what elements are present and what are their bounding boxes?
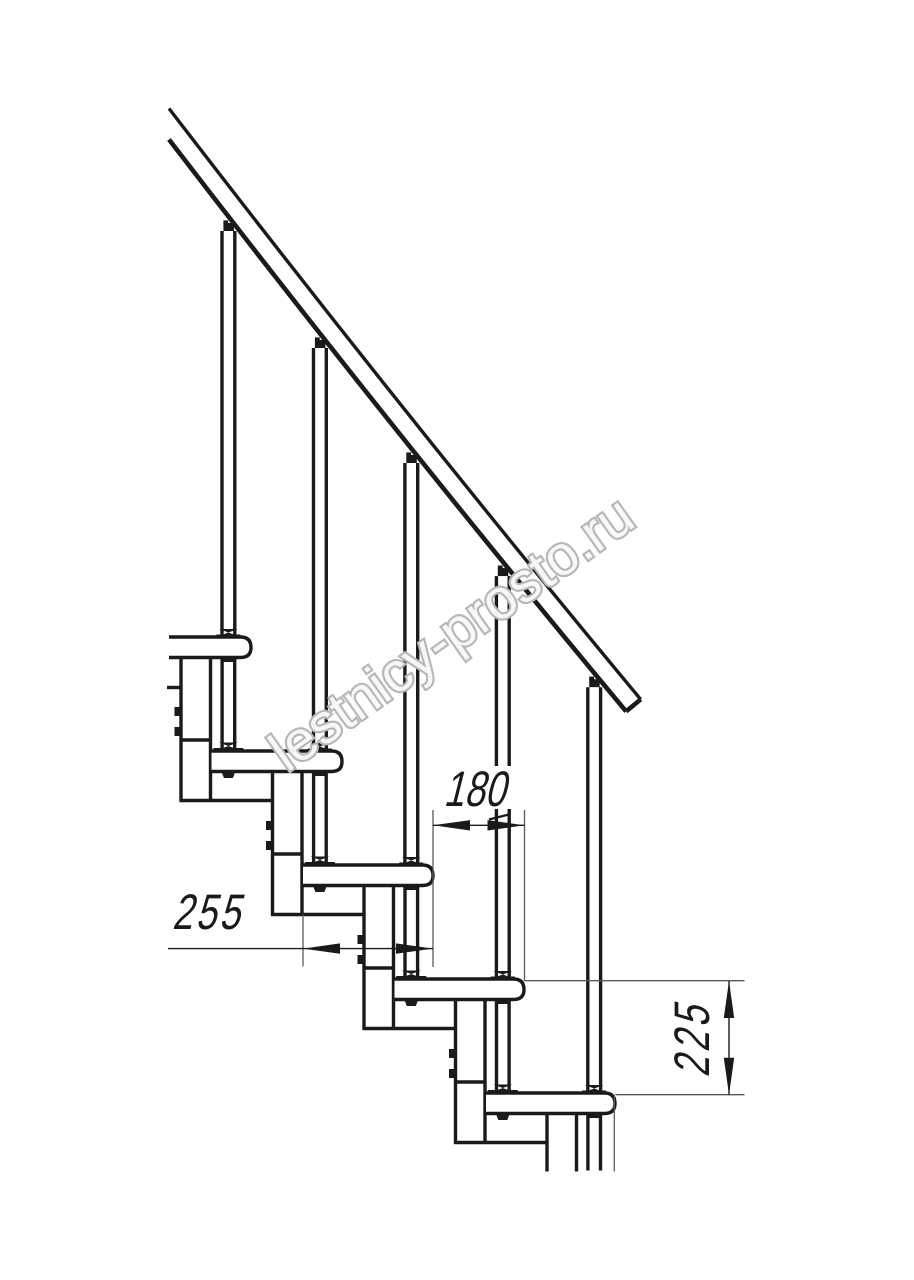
svg-text:255: 255 [169, 883, 254, 940]
svg-text:225: 225 [663, 991, 720, 1080]
